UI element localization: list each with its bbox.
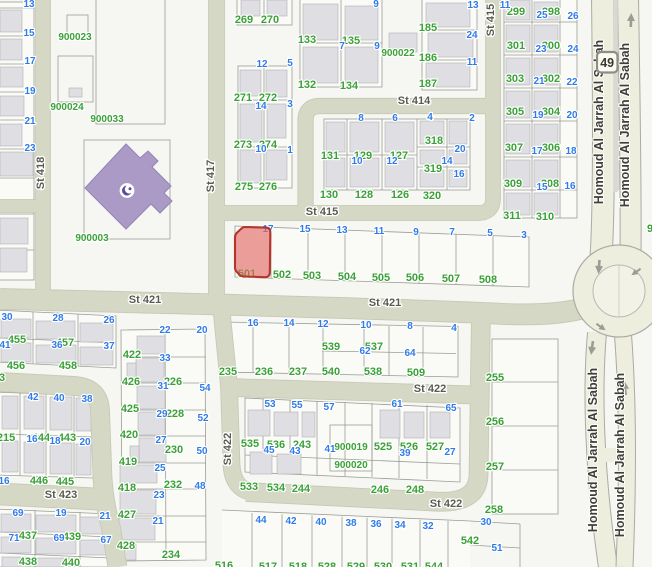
svg-text:900003: 900003 xyxy=(75,233,109,244)
svg-text:41: 41 xyxy=(324,444,336,455)
svg-text:9: 9 xyxy=(413,227,419,238)
svg-text:14: 14 xyxy=(283,318,295,329)
svg-text:215: 215 xyxy=(0,432,15,444)
svg-text:509: 509 xyxy=(407,367,425,379)
svg-text:530: 530 xyxy=(374,561,392,567)
svg-text:42: 42 xyxy=(27,392,39,403)
svg-text:14: 14 xyxy=(441,156,453,167)
svg-text:246: 246 xyxy=(371,484,389,496)
svg-text:304: 304 xyxy=(542,106,561,118)
svg-text:320: 320 xyxy=(423,190,441,202)
svg-text:54: 54 xyxy=(199,383,211,394)
svg-text:426: 426 xyxy=(122,376,140,388)
svg-text:540: 540 xyxy=(322,366,340,378)
svg-text:255: 255 xyxy=(486,372,504,384)
svg-text:531: 531 xyxy=(401,561,419,567)
svg-text:St 417: St 417 xyxy=(205,160,217,192)
svg-text:538: 538 xyxy=(364,366,382,378)
svg-text:36: 36 xyxy=(370,519,382,530)
svg-text:311: 311 xyxy=(503,210,521,222)
svg-text:502: 502 xyxy=(273,269,291,281)
svg-text:23: 23 xyxy=(535,44,547,55)
svg-text:228: 228 xyxy=(166,408,184,420)
svg-text:258: 258 xyxy=(485,504,503,516)
svg-text:15: 15 xyxy=(536,182,548,193)
svg-text:11: 11 xyxy=(374,226,385,237)
svg-text:517: 517 xyxy=(259,561,277,567)
svg-text:42: 42 xyxy=(285,516,297,527)
svg-text:185: 185 xyxy=(419,22,437,34)
svg-text:440: 440 xyxy=(62,557,80,567)
svg-text:256: 256 xyxy=(486,416,504,428)
svg-text:St 415: St 415 xyxy=(485,4,497,36)
svg-text:18: 18 xyxy=(565,146,577,157)
svg-text:22: 22 xyxy=(566,77,578,88)
svg-text:20: 20 xyxy=(79,437,91,448)
svg-text:900024: 900024 xyxy=(50,102,84,113)
svg-text:504: 504 xyxy=(338,271,357,283)
svg-text:186: 186 xyxy=(419,52,437,64)
svg-text:44: 44 xyxy=(255,515,267,526)
svg-text:419: 419 xyxy=(119,456,137,468)
svg-text:38: 38 xyxy=(81,394,93,405)
svg-text:61: 61 xyxy=(391,399,403,410)
svg-text:4: 4 xyxy=(451,323,457,334)
svg-text:276: 276 xyxy=(259,181,277,193)
svg-text:309: 309 xyxy=(504,178,522,190)
svg-text:39: 39 xyxy=(399,448,411,459)
svg-text:318: 318 xyxy=(425,135,443,147)
svg-text:65: 65 xyxy=(445,403,457,414)
svg-text:8: 8 xyxy=(407,321,413,332)
svg-text:St 415: St 415 xyxy=(306,206,338,218)
svg-text:12: 12 xyxy=(317,319,329,330)
svg-text:34: 34 xyxy=(394,520,406,531)
svg-text:St 422: St 422 xyxy=(430,498,462,510)
svg-text:16: 16 xyxy=(453,169,465,180)
svg-text:St 421: St 421 xyxy=(129,294,161,306)
svg-text:20: 20 xyxy=(196,325,208,336)
svg-text:234: 234 xyxy=(162,549,181,561)
svg-text:305: 305 xyxy=(506,106,524,118)
svg-text:438: 438 xyxy=(19,556,37,567)
svg-text:230: 230 xyxy=(165,444,183,456)
svg-text:57: 57 xyxy=(323,402,335,413)
svg-text:232: 232 xyxy=(164,479,182,491)
svg-text:1: 1 xyxy=(287,145,293,156)
svg-text:508: 508 xyxy=(479,274,497,286)
svg-text:187: 187 xyxy=(419,78,437,90)
svg-text:14: 14 xyxy=(255,101,267,112)
svg-text:21: 21 xyxy=(152,516,164,527)
svg-text:418: 418 xyxy=(118,482,136,494)
svg-text:302: 302 xyxy=(542,73,560,85)
svg-text:456: 456 xyxy=(7,360,25,372)
svg-text:12: 12 xyxy=(386,156,398,167)
svg-text:235: 235 xyxy=(219,366,237,378)
svg-text:503: 503 xyxy=(303,270,321,282)
svg-text:527: 527 xyxy=(426,441,444,453)
svg-text:443: 443 xyxy=(58,432,76,444)
svg-text:26: 26 xyxy=(567,11,579,22)
svg-text:128: 128 xyxy=(355,189,373,201)
svg-text:9: 9 xyxy=(647,223,652,235)
svg-text:528: 528 xyxy=(318,561,336,567)
svg-text:3: 3 xyxy=(287,99,293,110)
svg-text:458: 458 xyxy=(59,360,77,372)
svg-text:16: 16 xyxy=(26,434,38,445)
svg-text:11: 11 xyxy=(467,57,478,68)
svg-text:64: 64 xyxy=(404,348,416,359)
svg-text:506: 506 xyxy=(406,272,424,284)
svg-text:40: 40 xyxy=(315,517,327,528)
svg-text:516: 516 xyxy=(215,560,233,567)
svg-text:7: 7 xyxy=(449,227,455,238)
svg-text:131: 131 xyxy=(321,150,339,162)
svg-text:28: 28 xyxy=(52,313,64,324)
svg-text:5: 5 xyxy=(487,228,493,239)
svg-text:505: 505 xyxy=(372,272,390,284)
svg-text:37: 37 xyxy=(103,341,115,352)
svg-text:19: 19 xyxy=(55,508,67,519)
svg-text:St 422: St 422 xyxy=(222,433,234,465)
svg-text:301: 301 xyxy=(507,40,525,52)
svg-text:900033: 900033 xyxy=(90,114,124,125)
svg-text:307: 307 xyxy=(505,142,523,154)
svg-text:16: 16 xyxy=(247,318,259,329)
svg-text:248: 248 xyxy=(406,484,424,496)
svg-text:9: 9 xyxy=(374,41,380,52)
svg-text:26: 26 xyxy=(103,315,115,326)
svg-text:36: 36 xyxy=(51,340,63,351)
svg-text:29: 29 xyxy=(156,409,168,420)
svg-text:2: 2 xyxy=(469,113,475,124)
svg-text:38: 38 xyxy=(345,518,357,529)
svg-text:544: 544 xyxy=(425,561,444,567)
svg-text:8: 8 xyxy=(358,113,364,124)
svg-text:51: 51 xyxy=(491,543,503,554)
svg-text:507: 507 xyxy=(442,273,460,285)
svg-text:7: 7 xyxy=(339,41,345,52)
svg-text:31: 31 xyxy=(157,381,169,392)
svg-text:33: 33 xyxy=(159,353,171,364)
svg-text:10: 10 xyxy=(351,156,363,167)
svg-text:269: 269 xyxy=(235,14,253,26)
svg-text:439: 439 xyxy=(63,531,81,543)
svg-text:22: 22 xyxy=(159,325,171,336)
svg-text:Homoud Al Jarrah Al Sabah: Homoud Al Jarrah Al Sabah xyxy=(613,373,627,537)
svg-text:Homoud Al Jarrah Al Sabah: Homoud Al Jarrah Al Sabah xyxy=(586,368,600,532)
svg-text:273: 273 xyxy=(234,139,252,151)
svg-text:53: 53 xyxy=(264,399,276,410)
svg-text:420: 420 xyxy=(120,429,138,441)
svg-text:13: 13 xyxy=(23,0,35,10)
svg-text:525: 525 xyxy=(374,441,392,453)
svg-text:17: 17 xyxy=(531,146,543,157)
svg-text:257: 257 xyxy=(486,461,504,473)
svg-text:17: 17 xyxy=(24,56,36,67)
svg-text:534: 534 xyxy=(267,482,286,494)
svg-text:23: 23 xyxy=(153,490,165,501)
svg-text:535: 535 xyxy=(241,438,259,450)
svg-text:24: 24 xyxy=(567,44,579,55)
svg-text:St 422: St 422 xyxy=(414,383,446,395)
svg-text:71: 71 xyxy=(8,533,20,544)
svg-text:49: 49 xyxy=(600,56,614,70)
svg-text:275: 275 xyxy=(235,181,253,193)
svg-text:13: 13 xyxy=(336,225,348,236)
svg-text:900020: 900020 xyxy=(334,460,368,471)
svg-text:133: 133 xyxy=(298,34,316,46)
svg-text:422: 422 xyxy=(123,349,141,361)
svg-text:4: 4 xyxy=(427,112,433,123)
svg-text:St 423: St 423 xyxy=(45,489,77,501)
svg-text:236: 236 xyxy=(255,366,273,378)
svg-text:69: 69 xyxy=(12,508,24,519)
svg-text:237: 237 xyxy=(289,366,307,378)
svg-text:445: 445 xyxy=(56,476,74,488)
svg-text:St 418: St 418 xyxy=(35,157,47,189)
svg-text:Homoud Al Jarrah Al Sabah: Homoud Al Jarrah Al Sabah xyxy=(618,43,632,207)
svg-text:10: 10 xyxy=(360,320,372,331)
svg-text:43: 43 xyxy=(289,446,301,457)
svg-text:306: 306 xyxy=(542,142,560,154)
svg-text:15: 15 xyxy=(299,224,311,235)
svg-text:533: 533 xyxy=(240,481,258,493)
svg-text:12: 12 xyxy=(256,59,268,70)
svg-text:55: 55 xyxy=(291,400,303,411)
svg-text:244: 244 xyxy=(292,483,311,495)
svg-text:69: 69 xyxy=(53,533,65,544)
svg-text:30: 30 xyxy=(1,312,13,323)
svg-text:52: 52 xyxy=(197,413,209,424)
svg-text:48: 48 xyxy=(194,481,206,492)
svg-text:62: 62 xyxy=(359,346,371,357)
svg-text:25: 25 xyxy=(536,10,548,21)
svg-text:St 414: St 414 xyxy=(398,95,431,107)
svg-text:126: 126 xyxy=(391,189,409,201)
svg-text:20: 20 xyxy=(454,144,466,155)
svg-text:437: 437 xyxy=(19,530,37,542)
svg-text:24: 24 xyxy=(466,30,478,41)
svg-text:67: 67 xyxy=(100,535,112,546)
svg-text:270: 270 xyxy=(261,14,279,26)
svg-text:19: 19 xyxy=(532,110,544,121)
svg-text:425: 425 xyxy=(121,403,139,415)
svg-text:32: 32 xyxy=(422,521,434,532)
svg-text:50: 50 xyxy=(196,446,208,457)
svg-text:427: 427 xyxy=(118,509,136,521)
svg-text:16: 16 xyxy=(564,181,576,192)
svg-text:303: 303 xyxy=(506,73,524,85)
svg-text:134: 134 xyxy=(340,80,359,92)
svg-text:27: 27 xyxy=(444,447,456,458)
svg-text:130: 130 xyxy=(320,189,338,201)
svg-text:3: 3 xyxy=(0,372,5,384)
svg-text:900019: 900019 xyxy=(334,442,368,453)
svg-text:3: 3 xyxy=(521,230,527,241)
svg-text:539: 539 xyxy=(322,341,340,353)
svg-text:5: 5 xyxy=(287,58,293,69)
svg-text:13: 13 xyxy=(467,0,479,11)
svg-text:455: 455 xyxy=(8,334,26,346)
svg-text:15: 15 xyxy=(23,28,35,39)
svg-text:529: 529 xyxy=(347,561,365,567)
svg-text:446: 446 xyxy=(30,475,48,487)
svg-text:9: 9 xyxy=(373,0,379,10)
svg-text:40: 40 xyxy=(53,393,65,404)
svg-text:271: 271 xyxy=(234,92,252,104)
svg-text:25: 25 xyxy=(154,463,166,474)
svg-text:23: 23 xyxy=(24,143,36,154)
svg-text:319: 319 xyxy=(424,163,442,175)
svg-text:310: 310 xyxy=(536,211,554,223)
svg-text:18: 18 xyxy=(49,436,61,447)
svg-text:11: 11 xyxy=(500,0,511,11)
svg-text:30: 30 xyxy=(480,517,492,528)
svg-text:21: 21 xyxy=(24,116,36,127)
svg-text:27: 27 xyxy=(155,435,167,446)
svg-text:132: 132 xyxy=(298,79,316,91)
svg-text:21: 21 xyxy=(99,511,111,522)
svg-text:21: 21 xyxy=(533,76,545,87)
svg-text:20: 20 xyxy=(566,110,578,121)
svg-text:6: 6 xyxy=(392,113,398,124)
svg-text:900023: 900023 xyxy=(58,32,92,43)
svg-text:45: 45 xyxy=(263,445,275,456)
svg-text:518: 518 xyxy=(289,561,307,567)
svg-text:542: 542 xyxy=(461,535,479,547)
svg-text:41: 41 xyxy=(0,340,11,351)
svg-text:900022: 900022 xyxy=(381,48,415,59)
svg-text:16: 16 xyxy=(0,476,10,487)
svg-text:428: 428 xyxy=(117,540,135,552)
svg-text:19: 19 xyxy=(24,86,36,97)
svg-text:10: 10 xyxy=(255,144,267,155)
svg-text:St 421: St 421 xyxy=(369,297,401,309)
